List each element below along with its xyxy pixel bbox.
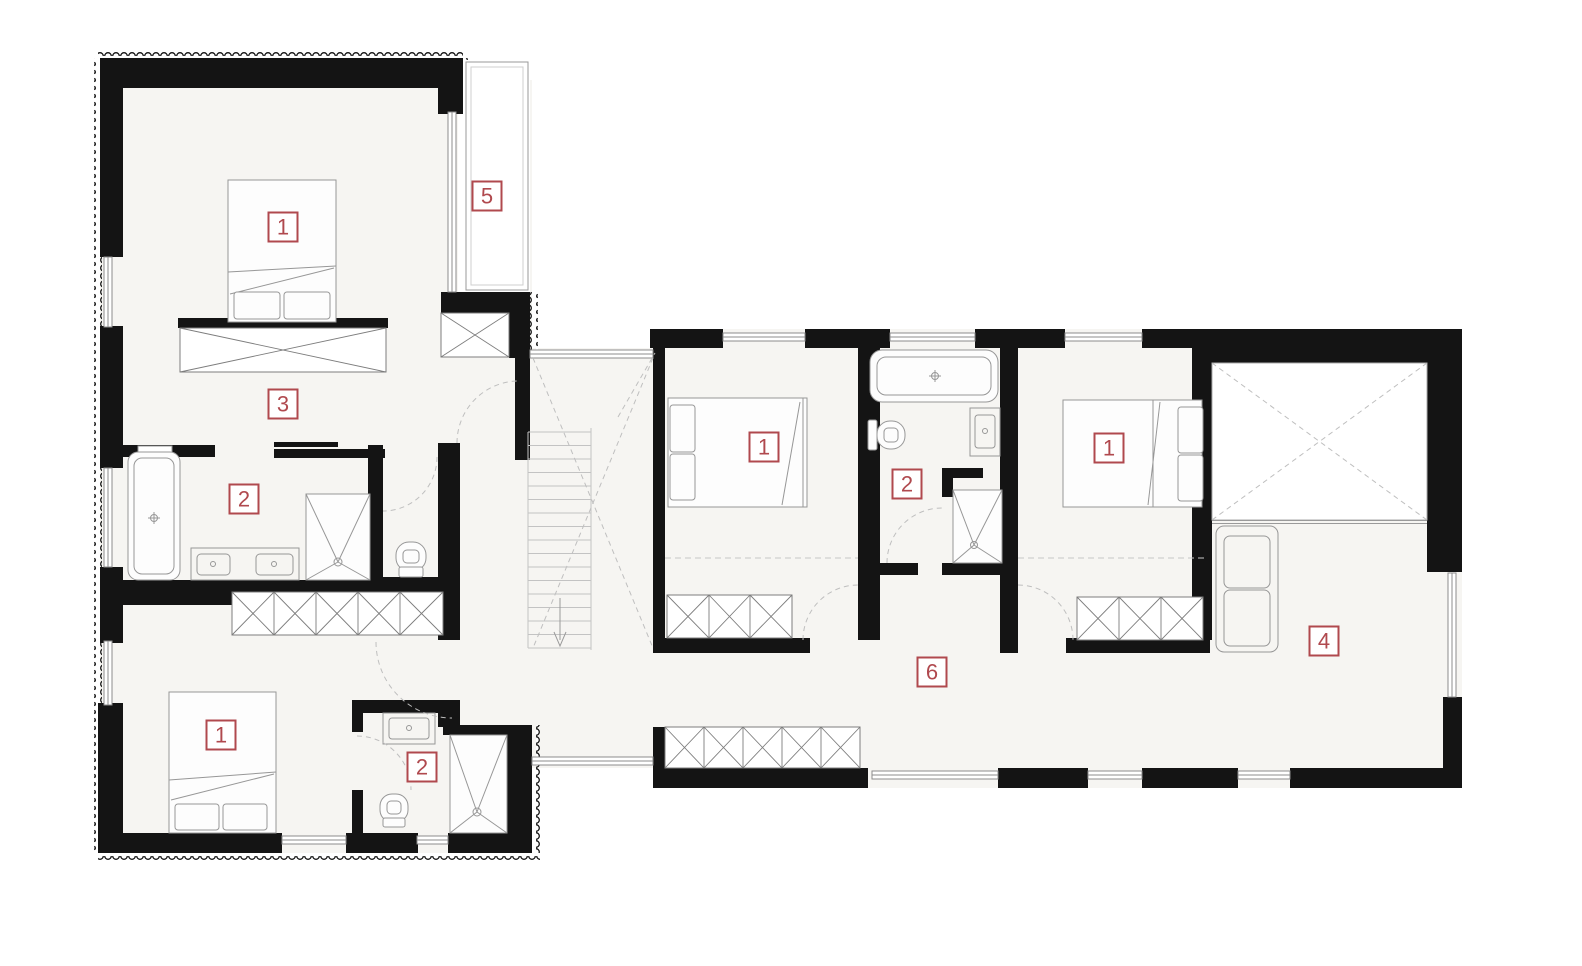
balcony-door-window	[448, 112, 456, 292]
pocket-door-leaf	[274, 442, 338, 447]
wardrobe-center-bedroom	[667, 595, 792, 638]
toilet-cistern	[399, 567, 423, 577]
window	[282, 836, 346, 844]
pillow	[223, 804, 267, 830]
wardrobe-hallway	[665, 727, 860, 768]
balcony-deck	[458, 60, 530, 292]
toilet-center	[868, 420, 905, 450]
room-four-void	[1212, 363, 1427, 524]
scallop-bottom-wall	[98, 853, 540, 861]
chimney-shaft	[441, 313, 509, 357]
pillow	[175, 804, 219, 830]
wardrobe-right-bedroom	[1077, 597, 1203, 640]
floor-plan-canvas: 15321212146	[0, 0, 1582, 966]
window	[723, 333, 805, 341]
shower-left-bathroom	[306, 494, 370, 580]
window	[1238, 771, 1290, 779]
bed-center-bedroom	[668, 398, 807, 507]
shower-center	[953, 490, 1002, 563]
bed-top-left	[228, 180, 336, 322]
toilet-bottom	[380, 794, 408, 827]
balcony	[458, 60, 530, 292]
wardrobe-bedroom-bottom-left	[232, 592, 443, 635]
window	[104, 257, 112, 327]
stairwell-window-bottom	[532, 757, 653, 765]
wardrobe-dressing-room	[180, 328, 386, 372]
pillow	[284, 292, 330, 319]
window	[104, 468, 112, 567]
scallop-shower-block	[532, 725, 540, 853]
bathtub-center	[870, 350, 998, 402]
pillow	[670, 405, 695, 452]
scallop-balcony-block	[530, 292, 538, 357]
floor-plan-drawing	[0, 0, 1582, 966]
scallop-top-wall	[98, 50, 463, 58]
pillow	[670, 454, 695, 500]
window	[1065, 333, 1142, 341]
bed-right-bedroom	[1063, 400, 1203, 507]
stairwell-window-top	[530, 350, 653, 358]
pillow	[1178, 407, 1203, 453]
shower-bottom-left	[450, 735, 507, 833]
pillow	[1178, 455, 1203, 501]
bed-bottom-left	[169, 692, 276, 833]
toilet-cistern	[868, 420, 877, 450]
window	[872, 771, 998, 779]
window	[104, 641, 112, 705]
bathtub-left	[128, 452, 180, 580]
toilet-upper	[396, 542, 426, 577]
window	[1088, 771, 1142, 779]
pillow	[234, 292, 280, 319]
window	[417, 836, 448, 844]
window	[890, 333, 975, 341]
window	[1448, 573, 1456, 697]
